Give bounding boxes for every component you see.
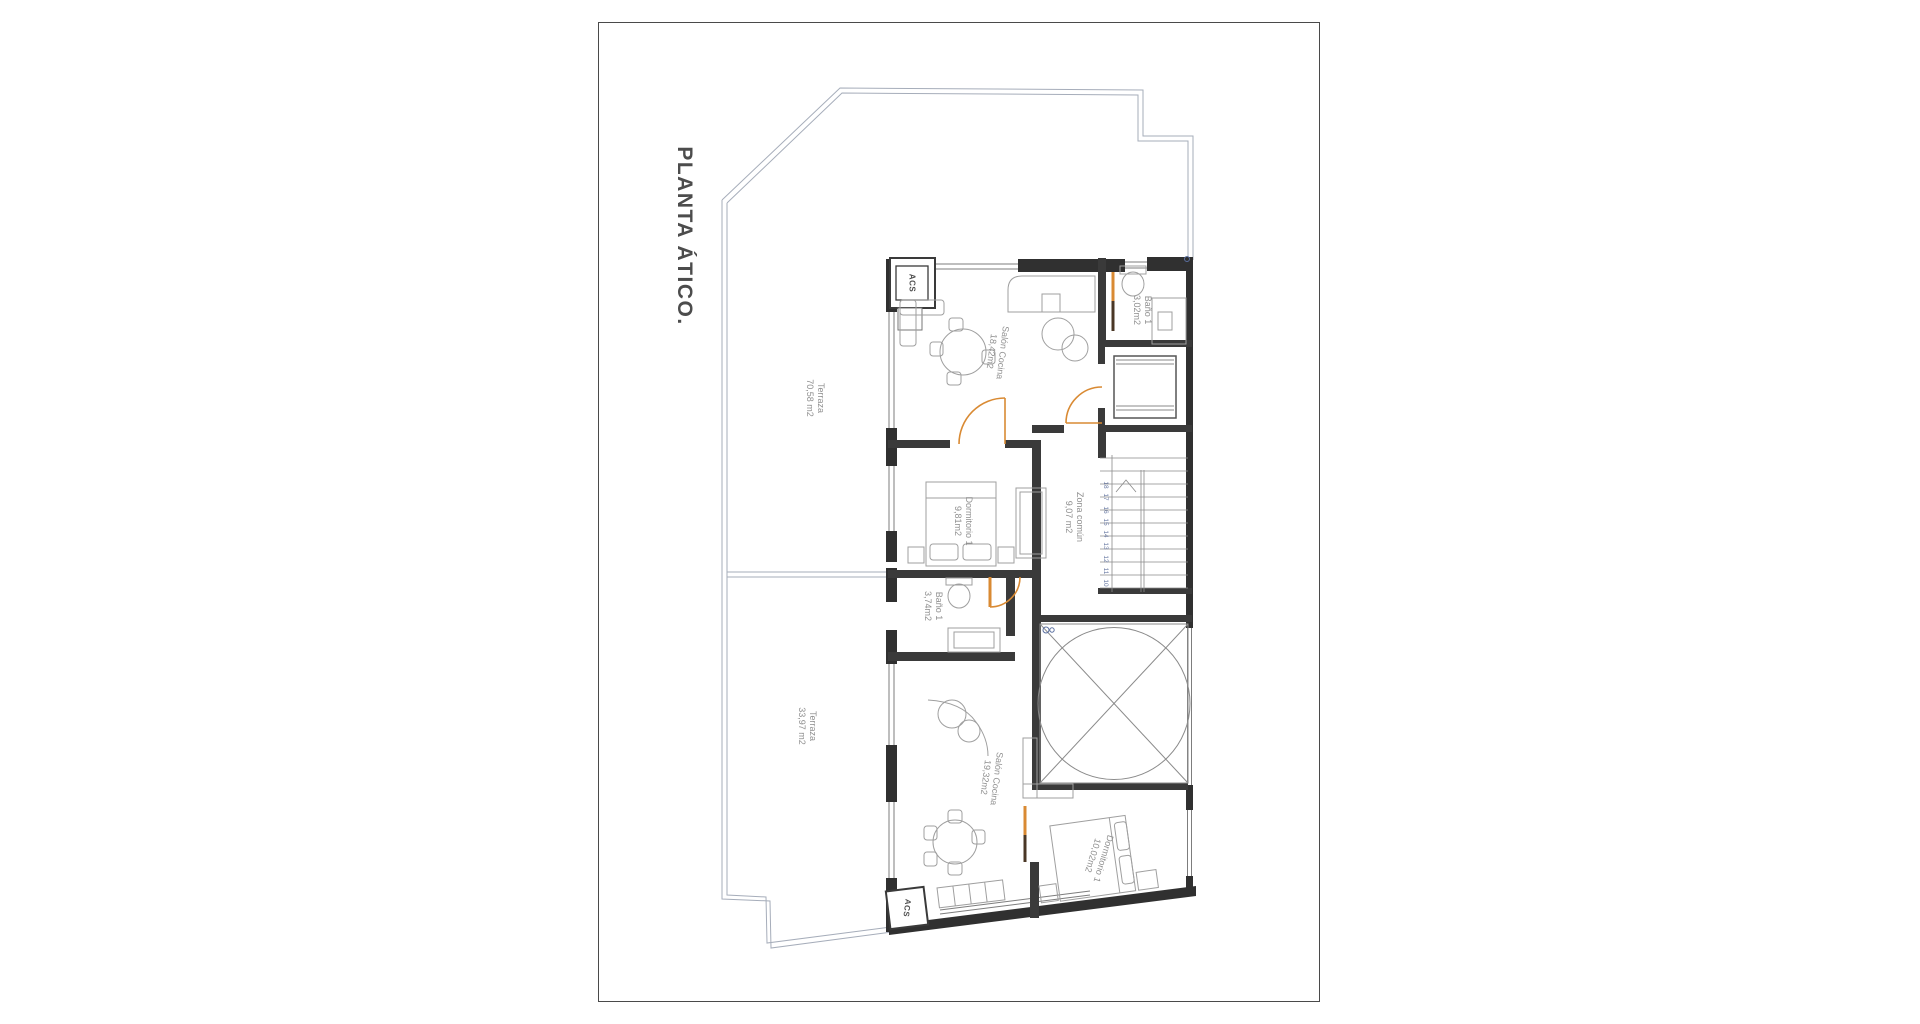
page-title: PLANTA ÁTICO. (672, 146, 696, 325)
room-name: Baño 1 (1142, 295, 1153, 325)
elevator-rails (1116, 360, 1174, 410)
room-name: Baño 1 (933, 591, 944, 621)
room-label-bano-1-top: Baño 1 3,02m2 (1131, 295, 1153, 325)
dining-table-2 (924, 810, 985, 875)
room-label-dormitorio-1-top: Dormitorio 1 9,81m2 (952, 496, 974, 545)
stair-step-number: 12 (1102, 555, 1109, 563)
stair-step-number: 15 (1102, 518, 1109, 526)
shower-top (1152, 298, 1186, 344)
stair-step-number: 16 (1102, 506, 1109, 514)
shower-bottom (948, 628, 1000, 652)
room-label-terraza-lower: Terraza 33,97 m2 (796, 707, 818, 745)
room-area: 9,07 m2 (1063, 492, 1074, 542)
kitchen-counter-1 (1008, 276, 1095, 361)
door-bathroom-bottom (990, 577, 1020, 607)
stair-step-number: 13 (1102, 542, 1109, 550)
acs-label-top: ACS (908, 274, 917, 292)
room-label-bano-1-bottom: Baño 1 3,74m2 (922, 591, 944, 621)
elevator-shaft (1098, 340, 1192, 432)
room-area: 3,74m2 (922, 591, 933, 621)
room-area: 70,58 m2 (804, 379, 815, 417)
stair-step-number: 18 (1102, 481, 1109, 489)
room-area: 3,02m2 (1131, 295, 1142, 325)
furniture (900, 266, 1186, 908)
room-label-terraza-upper: Terraza 70,58 m2 (804, 379, 826, 417)
wardrobe-1 (1016, 488, 1046, 558)
staircase: 10 11 12 13 14 15 16 17 18 (1100, 455, 1188, 592)
toilet-bottom (946, 578, 972, 608)
patio-lightwell (1038, 624, 1190, 783)
stair-step-number: 14 (1102, 530, 1109, 538)
room-name: Dormitorio 1 (963, 496, 974, 545)
room-area: 33,97 m2 (796, 707, 807, 745)
stair-direction-arrow (1116, 480, 1136, 492)
acs-box-top (890, 258, 935, 330)
room-area: 9,81m2 (952, 496, 963, 545)
stair-step-number: 17 (1102, 493, 1109, 501)
room-name: Terraza (807, 707, 818, 745)
room-name: Zona común (1074, 492, 1085, 542)
room-label-zona-comun: Zona común 9,07 m2 (1063, 492, 1085, 542)
stair-step-number: 11 (1102, 568, 1109, 575)
stair-step-numbers: 10 11 12 13 14 15 16 17 18 (1102, 481, 1109, 587)
stair-step-number: 10 (1102, 579, 1109, 587)
door-salon1 (959, 398, 1005, 444)
elevator-car (1114, 356, 1176, 418)
room-name: Terraza (815, 379, 826, 417)
door-apartment1-entrance (1066, 387, 1102, 423)
corner-marker-icon (1043, 627, 1054, 633)
floor-plan-page: 10 11 12 13 14 15 16 17 18 (0, 0, 1920, 1024)
